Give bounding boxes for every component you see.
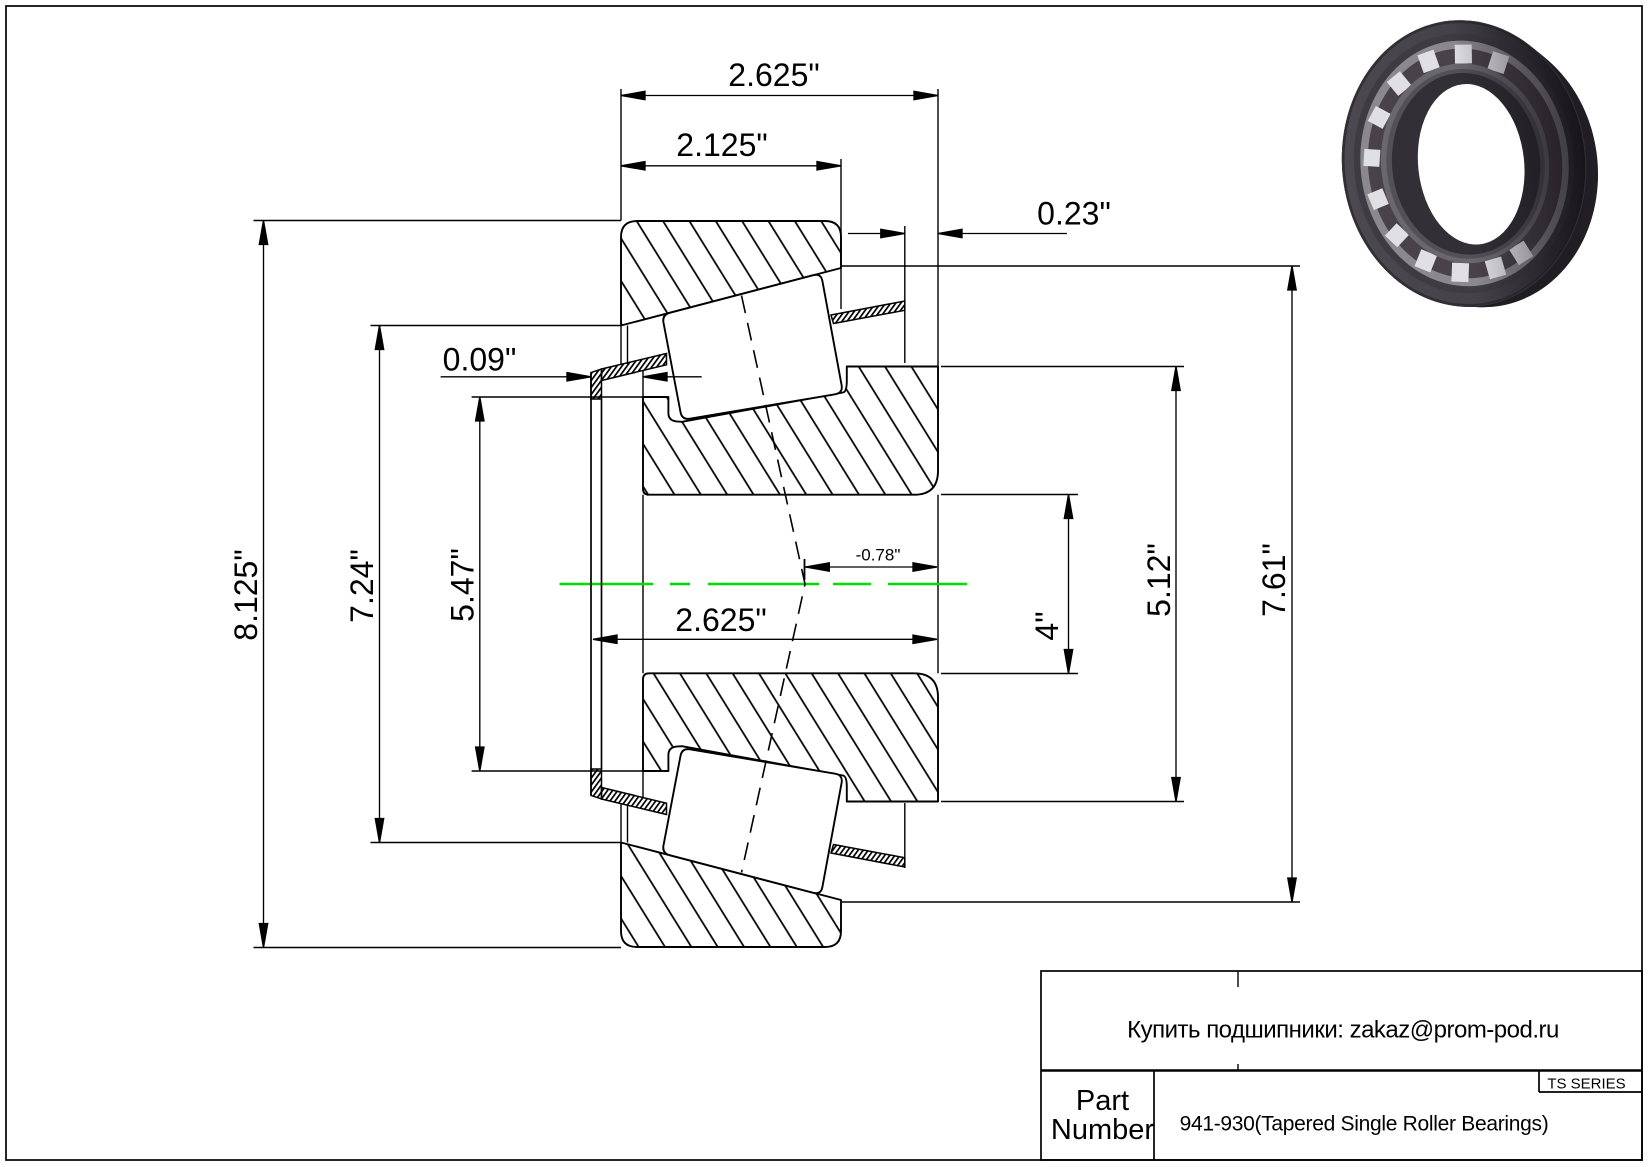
svg-text:4": 4" xyxy=(1029,611,1065,640)
svg-text:7.24": 7.24" xyxy=(344,549,380,623)
svg-text:5.47": 5.47" xyxy=(445,548,481,622)
svg-text:8.125": 8.125" xyxy=(228,549,264,640)
svg-text:2.625": 2.625" xyxy=(675,602,766,638)
svg-text:2.625": 2.625" xyxy=(728,57,819,93)
svg-text:Купить подшипники: zakaz@prom-: Купить подшипники: zakaz@prom-pod.ru xyxy=(1127,1017,1559,1044)
svg-text:941-930(Tapered Single Roller: 941-930(Tapered Single Roller Bearings) xyxy=(1180,1113,1549,1136)
svg-text:Part: Part xyxy=(1076,1085,1129,1117)
svg-text:Number: Number xyxy=(1051,1114,1154,1146)
svg-text:0.23": 0.23" xyxy=(1037,196,1111,232)
svg-text:5.12": 5.12" xyxy=(1141,543,1177,617)
svg-text:TS SERIES: TS SERIES xyxy=(1547,1076,1625,1093)
svg-text:-0.78": -0.78" xyxy=(856,546,901,565)
svg-text:7.61": 7.61" xyxy=(1256,543,1292,617)
svg-text:2.125": 2.125" xyxy=(676,127,767,163)
svg-text:0.09": 0.09" xyxy=(443,342,517,378)
